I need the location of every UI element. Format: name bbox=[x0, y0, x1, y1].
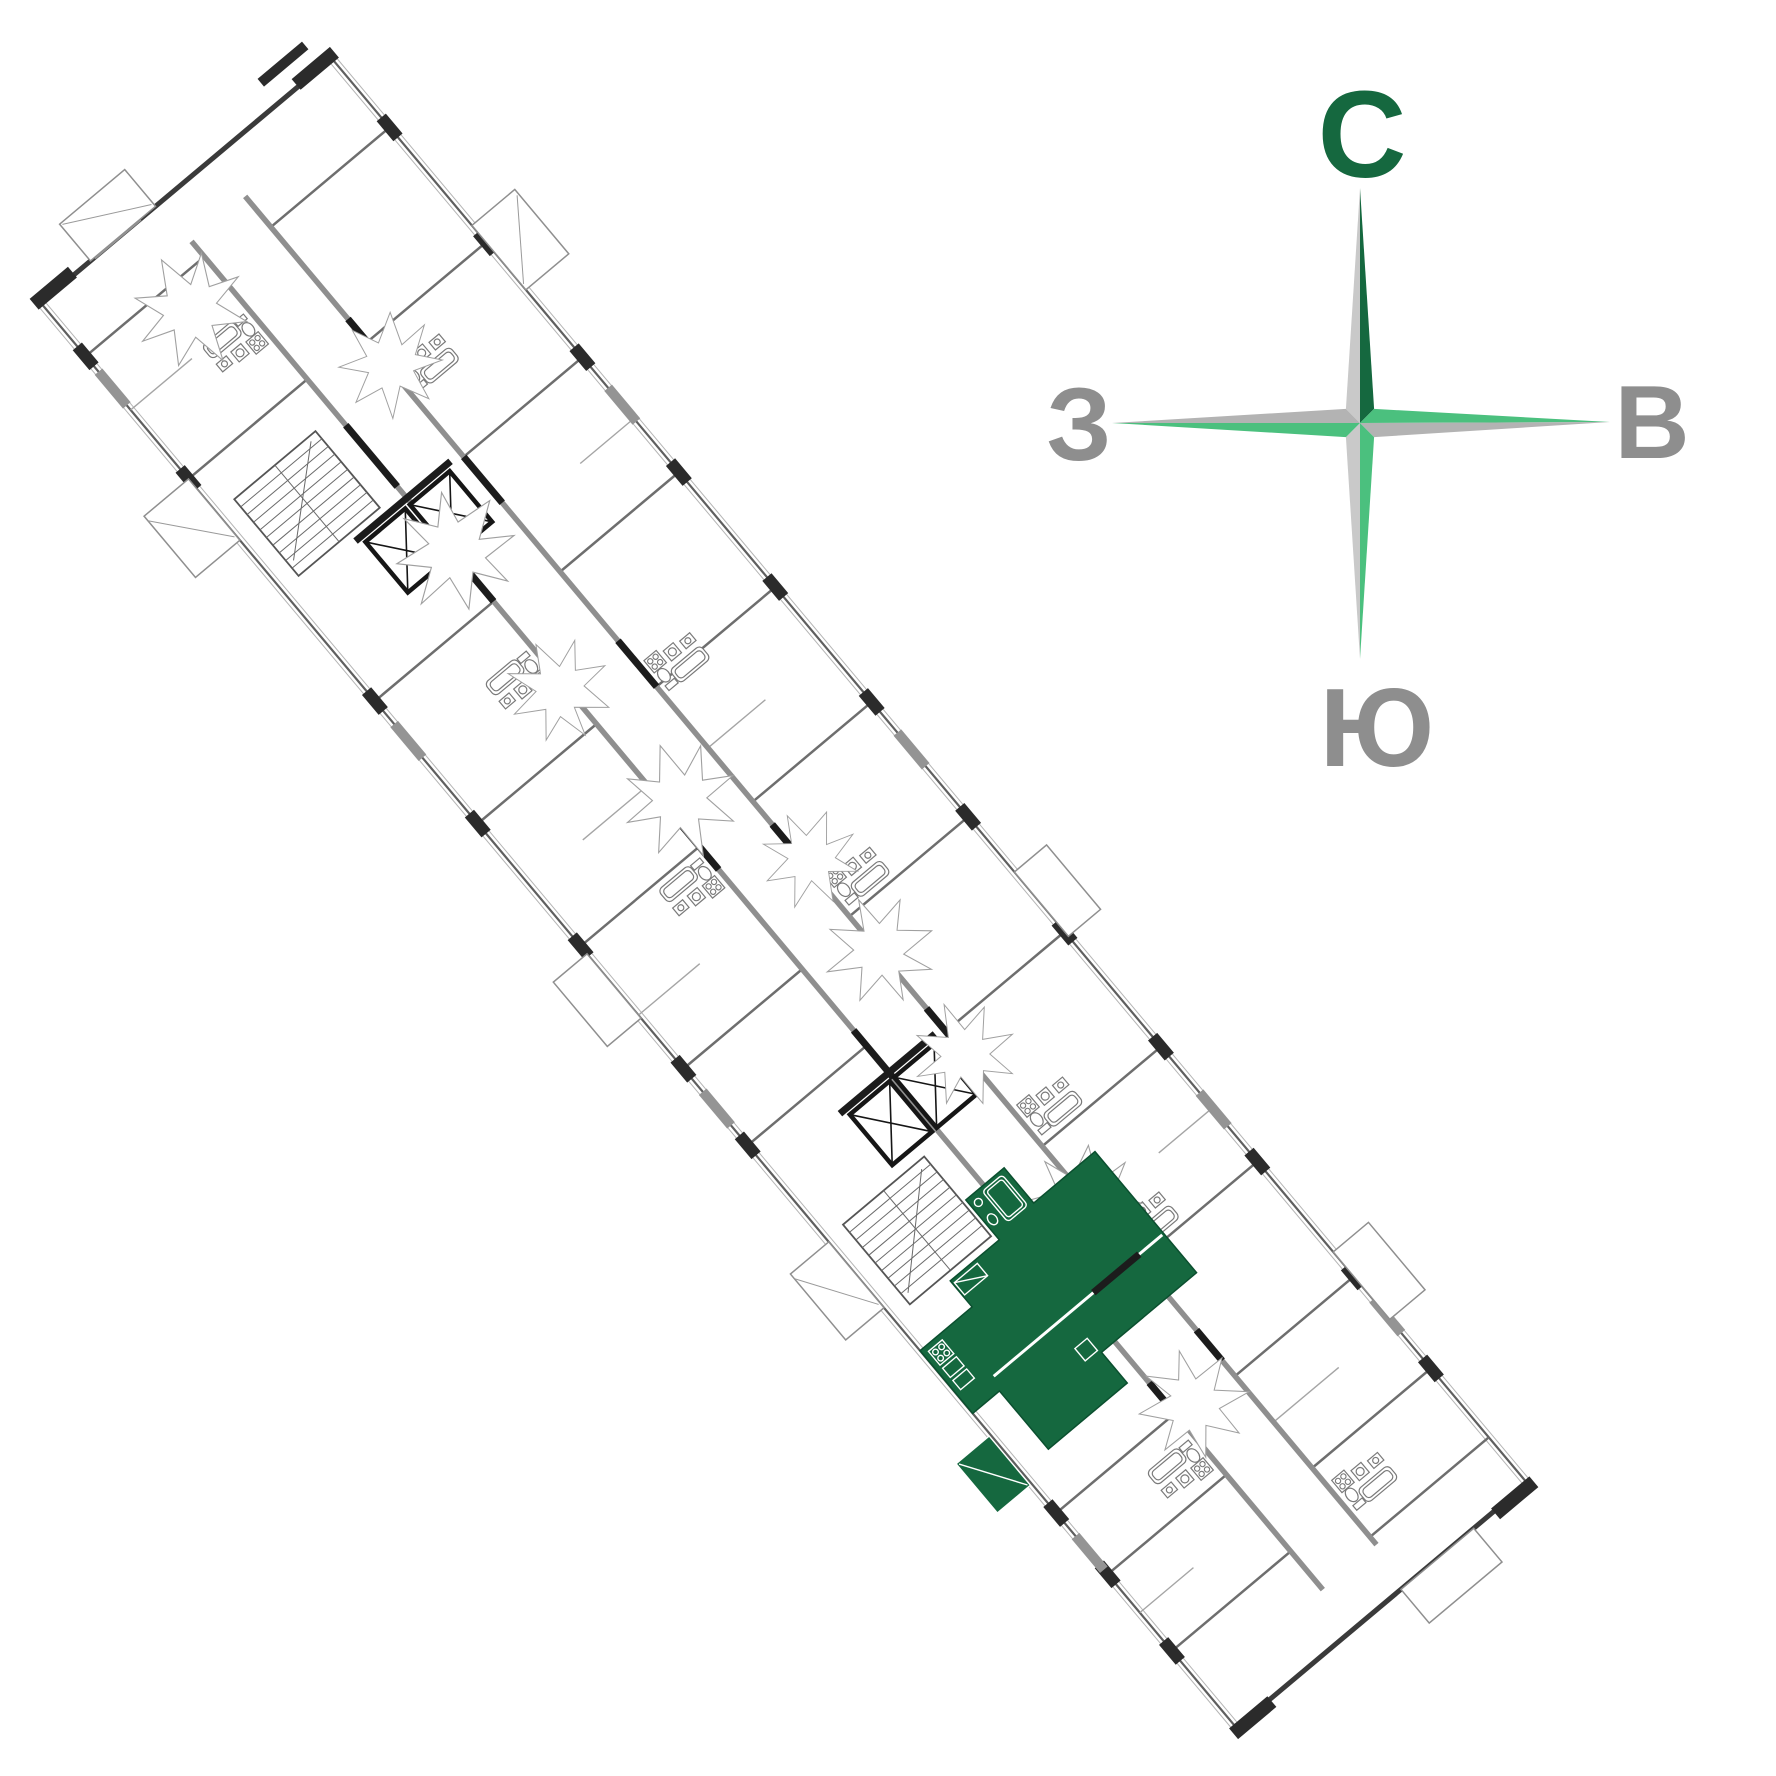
compass-label-south: Ю bbox=[1320, 666, 1434, 790]
compass-label-north: С bbox=[1318, 67, 1407, 204]
compass-rose: С З В Ю bbox=[1046, 67, 1689, 790]
screenshot-root: С З В Ю bbox=[0, 0, 1776, 1776]
end-balcony-bottom bbox=[1401, 1528, 1502, 1623]
window-bands bbox=[38, 56, 1531, 1730]
end-walls bbox=[30, 47, 1539, 1739]
staircase-upper bbox=[234, 431, 379, 576]
compass-star-icon bbox=[1112, 188, 1610, 659]
facade-piers bbox=[73, 98, 1476, 1665]
building-footprint bbox=[41, 58, 1528, 1727]
compass-label-west: З bbox=[1046, 367, 1111, 483]
partition-walls-right bbox=[271, 127, 1489, 1537]
end-balcony-top bbox=[60, 170, 156, 261]
compass-label-east: В bbox=[1614, 365, 1689, 481]
